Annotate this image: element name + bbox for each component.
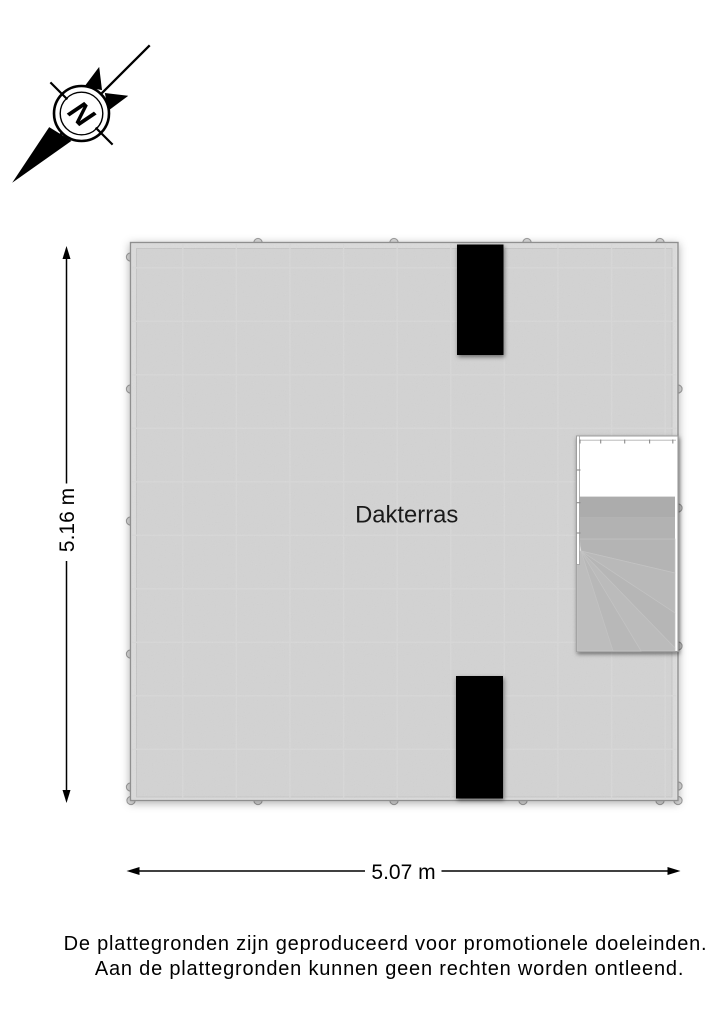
svg-text:Dakterras: Dakterras (355, 502, 458, 529)
svg-text:5.07 m: 5.07 m (371, 861, 435, 884)
svg-text:5.16 m: 5.16 m (56, 488, 79, 552)
svg-text:De plattegronden zijn geproduc: De plattegronden zijn geproduceerd voor … (64, 933, 708, 955)
svg-text:Aan de plattegronden kunnen ge: Aan de plattegronden kunnen geen rechten… (95, 958, 684, 980)
